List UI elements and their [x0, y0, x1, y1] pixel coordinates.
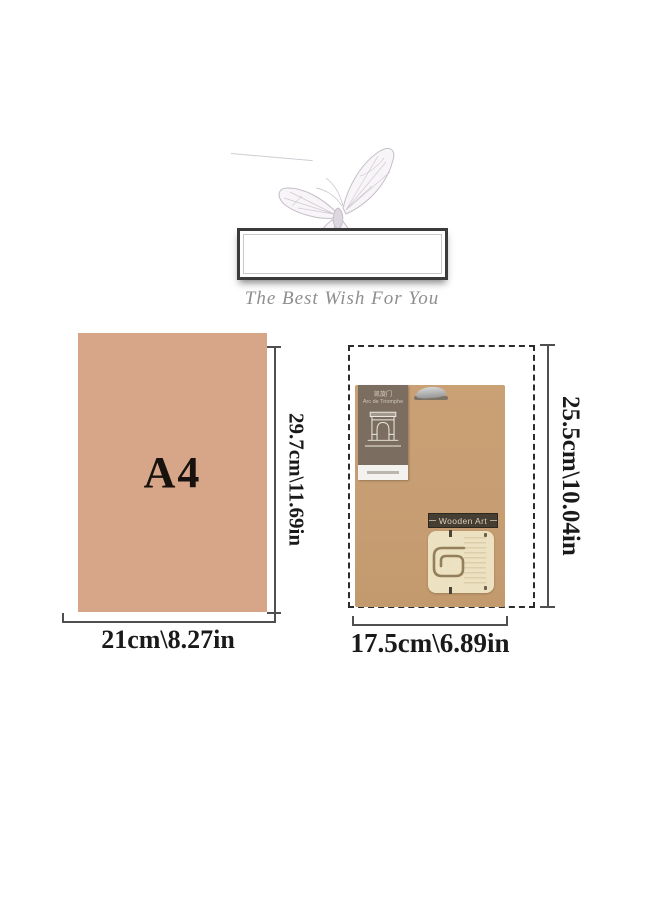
label-title-cn: 凯旋门 — [374, 392, 392, 399]
wood-notch-bottom — [449, 587, 452, 594]
label-title-en: Arc de Triomphe — [363, 399, 403, 406]
a4-height-dim-line — [274, 346, 276, 614]
package-width-dim-tick-left — [352, 616, 354, 626]
package-width-dim-line — [352, 624, 508, 626]
etched-pattern — [464, 537, 486, 587]
product-size-chart: The Best Wish For You A4 29.7cm\11.69in … — [0, 0, 660, 900]
wooden-sheet-piece — [428, 531, 494, 593]
a4-width-dim-line — [62, 621, 276, 623]
a4-height-label: 29.7cm\11.69in — [281, 346, 311, 614]
wooden-art-banner-label: Wooden Art — [439, 516, 487, 526]
banner-line-right — [490, 520, 497, 521]
wooden-art-banner: Wooden Art — [428, 513, 498, 528]
package-width-dim-tick-right — [506, 616, 508, 626]
butterfly-icon — [268, 146, 403, 241]
wood-notch-top — [449, 530, 452, 537]
a4-width-dim-tick-left — [62, 613, 64, 623]
a4-sheet: A4 — [78, 333, 267, 612]
tagline-text: The Best Wish For You — [192, 288, 492, 310]
a4-height-dim-cap-top — [267, 346, 281, 348]
blank-banner-box — [237, 228, 448, 280]
arc-de-triomphe-icon — [366, 408, 400, 442]
label-size-text-line — [365, 445, 401, 447]
package-label-art: 凯旋门 Arc de Triomphe — [358, 385, 408, 465]
package-front-label: 凯旋门 Arc de Triomphe — [358, 385, 408, 480]
banner-line-left — [429, 520, 436, 521]
a4-width-dim-tick-right — [274, 613, 276, 623]
label-brand-strip — [358, 465, 408, 480]
a4-label: A4 — [144, 447, 202, 498]
product-package: 凯旋门 Arc de Triomphe Wood — [355, 385, 505, 607]
label-brand-text-line — [367, 471, 399, 474]
package-height-dim-line — [547, 344, 549, 608]
a4-width-label: 21cm\8.27in — [68, 625, 268, 655]
package-width-label: 17.5cm\6.89in — [337, 628, 523, 659]
banner-inner-frame — [243, 234, 442, 274]
package-height-label: 25.5cm\10.04in — [553, 344, 587, 608]
